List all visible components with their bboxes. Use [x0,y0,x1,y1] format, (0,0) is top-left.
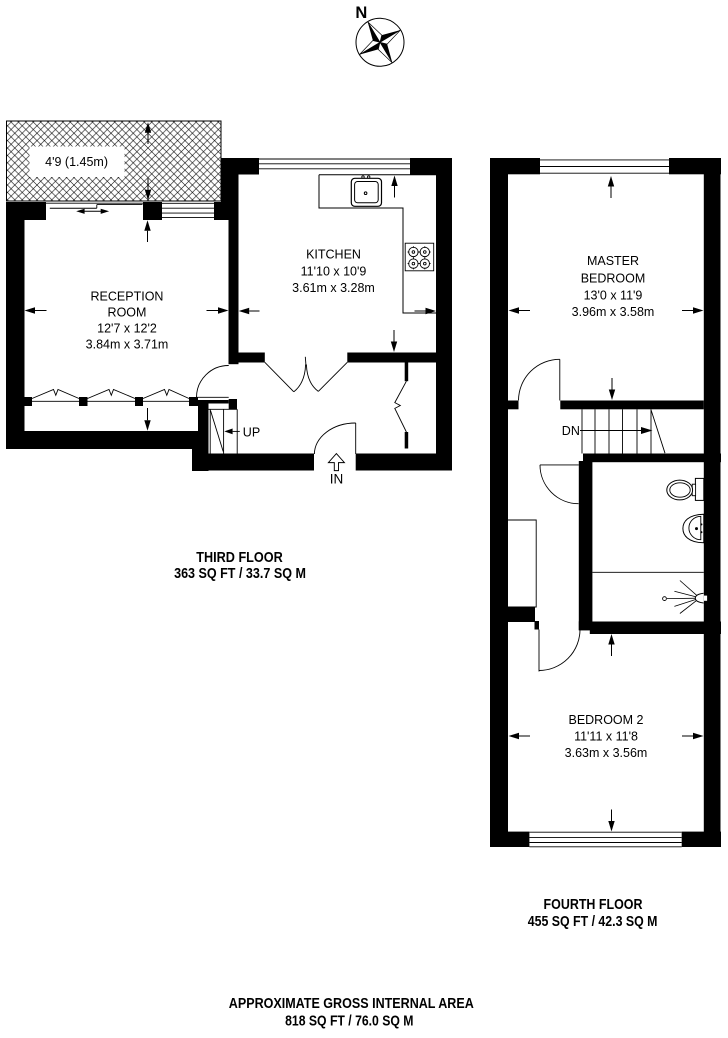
svg-text:IN: IN [330,472,344,487]
svg-text:3.63m x 3.56m: 3.63m x 3.56m [565,746,648,760]
svg-text:KITCHEN: KITCHEN [306,248,361,262]
svg-text:818 SQ FT / 76.0 SQ M: 818 SQ FT / 76.0 SQ M [285,1013,413,1030]
svg-text:BEDROOM: BEDROOM [581,272,646,286]
svg-text:455 SQ FT / 42.3 SQ M: 455 SQ FT / 42.3 SQ M [528,913,658,930]
svg-text:3.61m x 3.28m: 3.61m x 3.28m [292,281,375,295]
svg-text:363 SQ FT / 33.7 SQ M: 363 SQ FT / 33.7 SQ M [174,565,306,582]
svg-text:3.84m x 3.71m: 3.84m x 3.71m [86,338,169,352]
svg-text:BEDROOM 2: BEDROOM 2 [568,713,643,727]
svg-text:RECEPTION: RECEPTION [91,290,164,304]
svg-text:N: N [355,4,367,22]
svg-text:11'10 x 10'9: 11'10 x 10'9 [301,265,367,279]
svg-text:3.96m x 3.58m: 3.96m x 3.58m [572,305,655,319]
svg-text:ROOM: ROOM [108,306,147,320]
svg-text:4'9 (1.45m): 4'9 (1.45m) [45,155,108,169]
svg-text:13'0 x 11'9: 13'0 x 11'9 [584,289,643,303]
svg-text:APPROXIMATE GROSS INTERNAL ARE: APPROXIMATE GROSS INTERNAL AREA [229,995,474,1012]
svg-text:THIRD FLOOR: THIRD FLOOR [196,549,283,566]
svg-text:11'11 x 11'8: 11'11 x 11'8 [574,730,638,744]
svg-text:DN: DN [562,424,580,438]
svg-text:FOURTH FLOOR: FOURTH FLOOR [544,896,643,913]
svg-text:MASTER: MASTER [587,254,639,268]
svg-text:UP: UP [243,425,260,439]
svg-text:12'7 x 12'2: 12'7 x 12'2 [97,322,157,336]
